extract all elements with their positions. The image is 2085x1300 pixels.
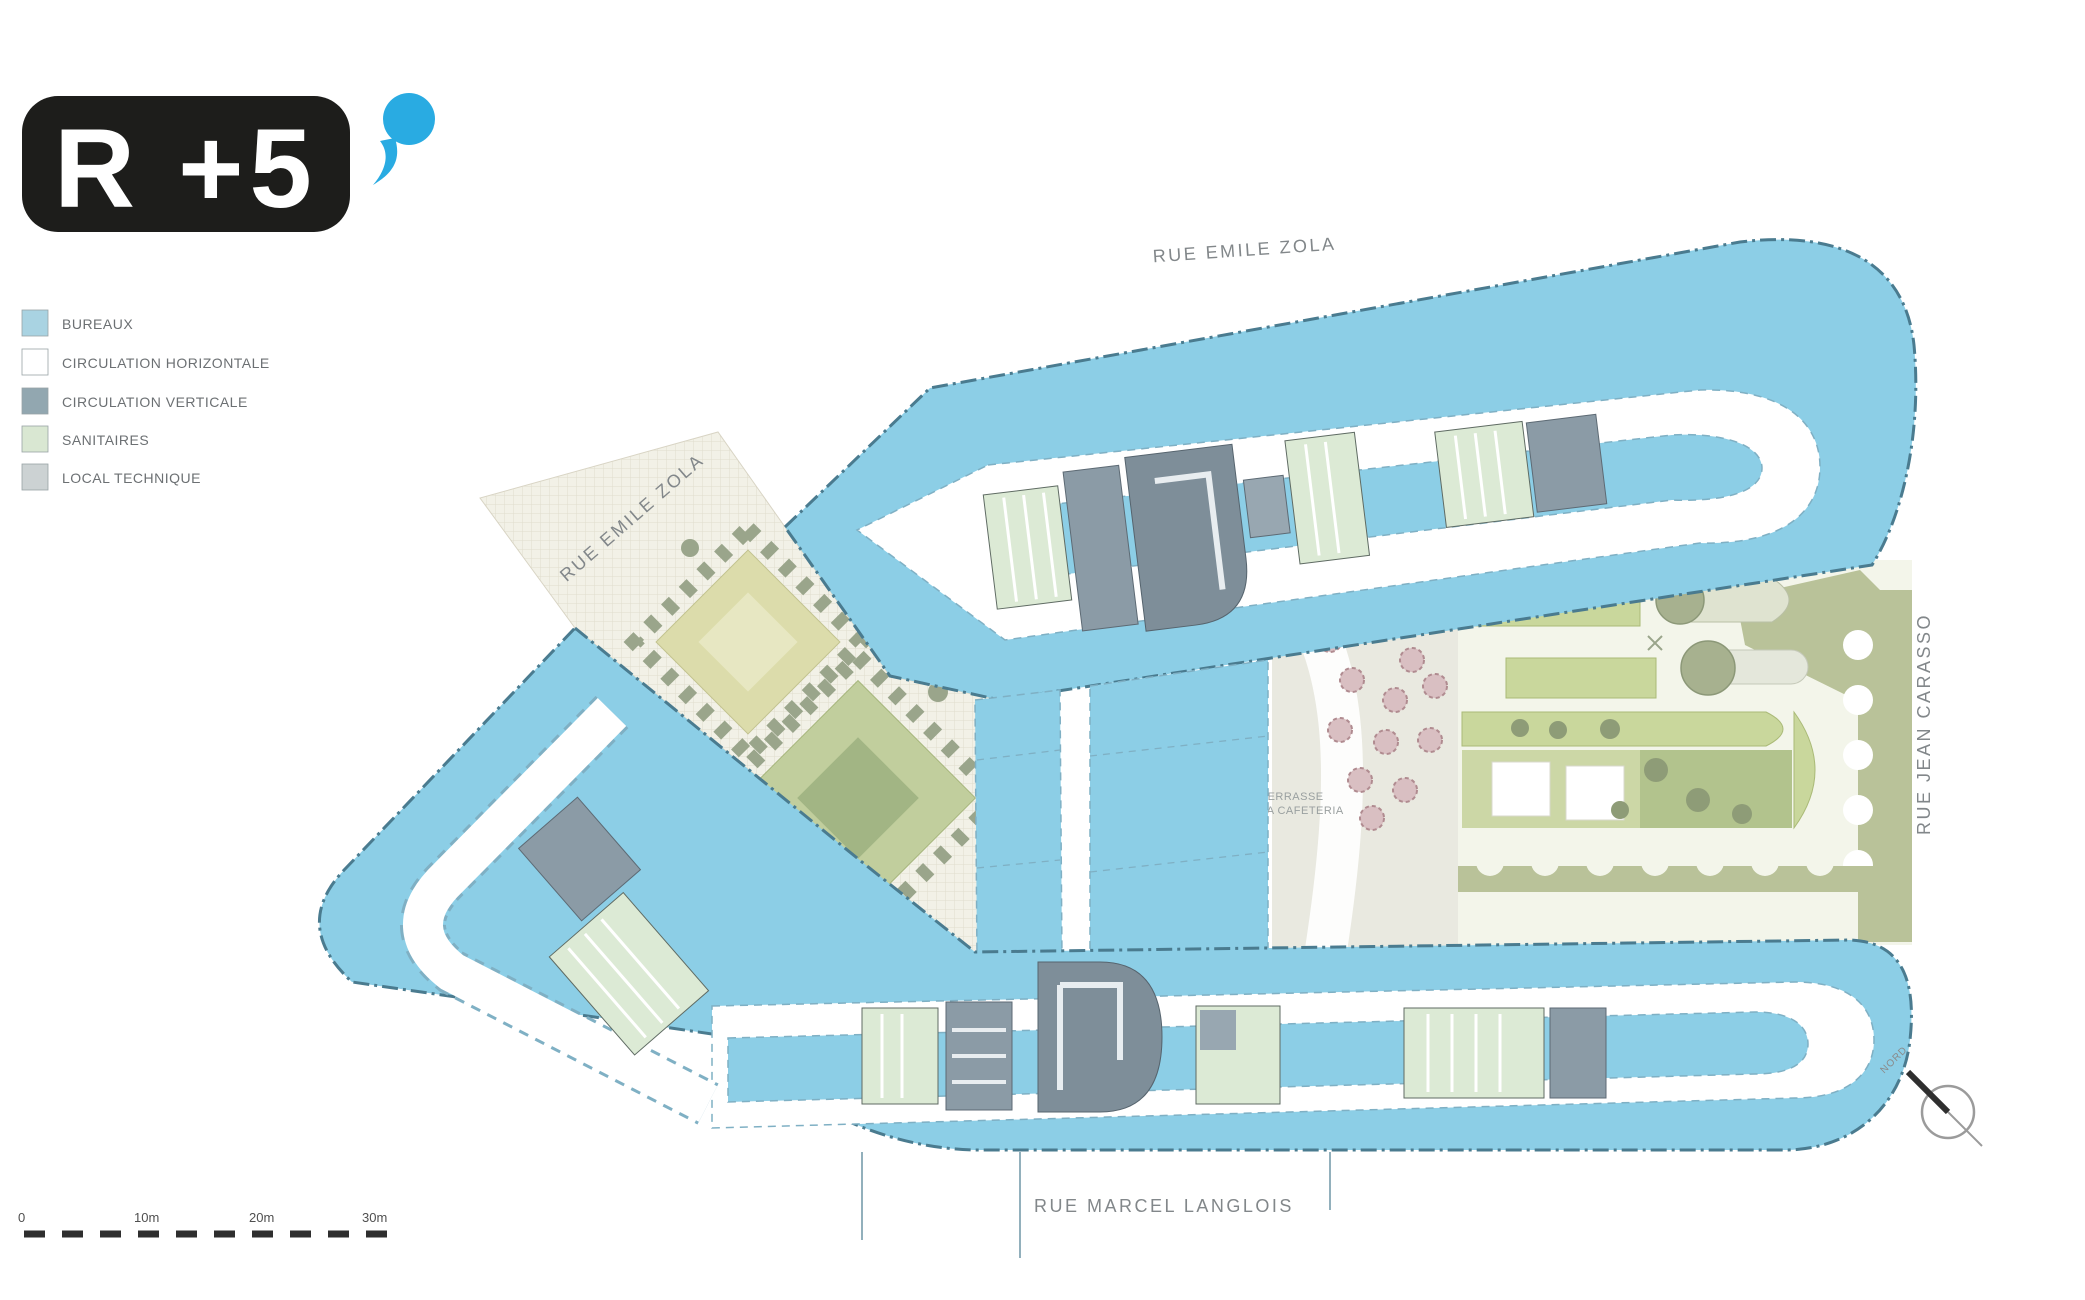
floor-plan-page: R +5 BUREAUX CIRCULATION HORIZONTALE CIR…	[0, 0, 2085, 1300]
link-west	[975, 690, 1062, 960]
legend-swatch-circulation-verticale	[22, 388, 48, 414]
scale-tick-10m: 10m	[134, 1210, 159, 1225]
circulation-verticale-block	[1550, 1008, 1606, 1098]
scale-bar: 0 10m 20m 30m	[18, 1210, 394, 1234]
brand-comma-icon	[373, 93, 435, 185]
sanitaires-block	[862, 1008, 938, 1104]
sanitaires-block	[1404, 1008, 1544, 1098]
legend-label-sanitaires: SANITAIRES	[62, 432, 149, 448]
legend: BUREAUX CIRCULATION HORIZONTALE CIRCULAT…	[22, 310, 270, 490]
garden-edge-band-south	[1458, 866, 1900, 892]
legend-item-circulation-horizontale: CIRCULATION HORIZONTALE	[22, 349, 270, 375]
street-label-rue-marcel-langlois: RUE MARCEL LANGLOIS	[1034, 1196, 1294, 1216]
legend-swatch-local-technique	[22, 464, 48, 490]
legend-swatch-circulation-horizontale	[22, 349, 48, 375]
terrace-label-line1: TERRASSE	[1260, 791, 1323, 803]
link-east	[1090, 660, 1268, 956]
garden-pergola	[1492, 762, 1550, 816]
legend-item-bureaux: BUREAUX	[22, 310, 133, 336]
scale-tick-30m: 30m	[362, 1210, 387, 1225]
north-arrow-icon: NORD	[1879, 1045, 1982, 1146]
scale-tick-20m: 20m	[249, 1210, 274, 1225]
local-technique-block	[1200, 1010, 1236, 1050]
legend-swatch-bureaux	[22, 310, 48, 336]
floor-badge-label: R +5	[54, 106, 318, 231]
legend-item-sanitaires: SANITAIRES	[22, 426, 149, 452]
street-label-rue-jean-carasso: RUE JEAN CARASSO	[1914, 613, 1934, 835]
floor-badge: R +5	[22, 93, 435, 232]
legend-label-circulation-verticale: CIRCULATION VERTICALE	[62, 394, 248, 410]
circulation-verticale-block	[1526, 414, 1606, 512]
sanitaires-block	[983, 486, 1071, 609]
floor-plan-drawing: R +5 BUREAUX CIRCULATION HORIZONTALE CIR…	[0, 0, 2085, 1300]
legend-item-circulation-verticale: CIRCULATION VERTICALE	[22, 388, 248, 414]
legend-item-local-technique: LOCAL TECHNIQUE	[22, 464, 201, 490]
local-technique-block	[1243, 475, 1290, 537]
legend-label-circulation-horizontale: CIRCULATION HORIZONTALE	[62, 355, 270, 371]
street-label-rue-emile-zola-top: RUE EMILE ZOLA	[1152, 234, 1337, 267]
stair-core	[1125, 444, 1254, 631]
link-corridors	[975, 660, 1268, 960]
legend-swatch-sanitaires	[22, 426, 48, 452]
legend-label-local-technique: LOCAL TECHNIQUE	[62, 470, 201, 486]
scale-tick-0: 0	[18, 1210, 25, 1225]
legend-label-bureaux: BUREAUX	[62, 316, 133, 332]
